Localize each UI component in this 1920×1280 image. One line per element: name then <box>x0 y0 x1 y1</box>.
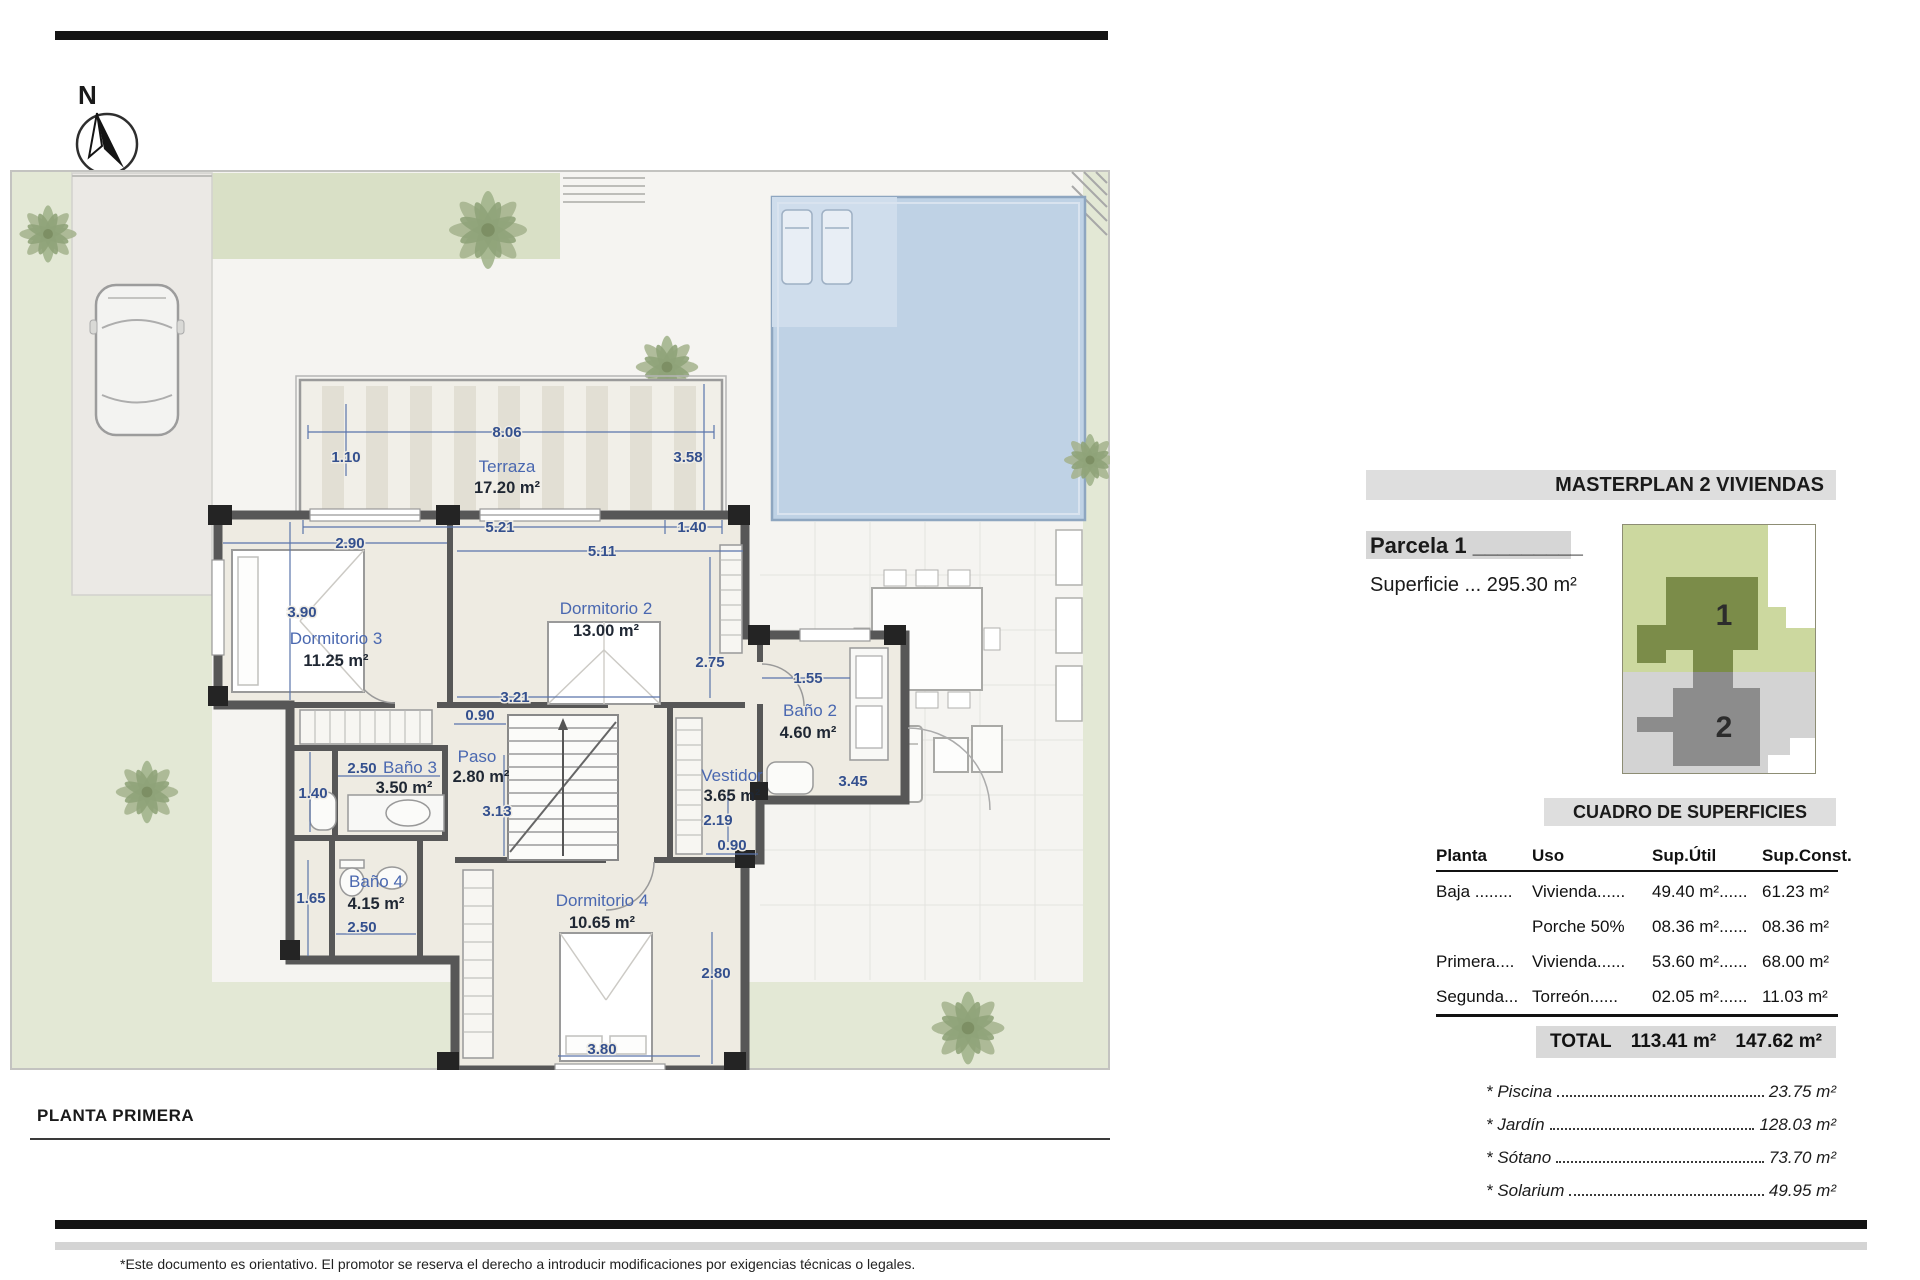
room-area-paso: 2.80 m² <box>453 768 510 786</box>
table-body: Baja ........ Vivienda...... 49.40 m²...… <box>1436 872 1838 1017</box>
dim-label: 3.58 <box>673 449 702 466</box>
col-header: Planta <box>1436 842 1532 870</box>
dotted-leader <box>1556 1161 1764 1163</box>
dim-label: 0.90 <box>465 707 494 724</box>
room-label-dorm3: Dormitorio 3 <box>290 629 383 648</box>
table-cell: Porche 50% <box>1532 909 1652 944</box>
room-area-vestidor: 3.65 m² <box>704 787 761 805</box>
room-area-dorm4: 10.65 m² <box>569 914 636 932</box>
cuadro-title: CUADRO DE SUPERFICIES <box>1573 802 1807 823</box>
superficie-label: Superficie ... 295.30 m² <box>1370 574 1577 597</box>
extras-list: * Piscina 23.75 m² * Jardín 128.03 m² * … <box>1486 1082 1836 1214</box>
extra-value: 23.75 m² <box>1769 1082 1836 1102</box>
table-cell: 68.00 m² <box>1762 944 1838 979</box>
room-area-bano3: 3.50 m² <box>376 779 433 797</box>
house-1-number: 1 <box>1709 599 1739 633</box>
house-1-wing <box>1637 625 1666 663</box>
dim-label: 1.65 <box>296 890 325 907</box>
room-label-bano3: Baño 3 <box>383 758 437 777</box>
car <box>90 285 184 435</box>
floor-plan-svg: Terraza 17.20 m² Dormitorio 3 11.25 m² D… <box>10 170 1110 1070</box>
house-2-number: 2 <box>1709 711 1739 745</box>
notch <box>1768 525 1815 607</box>
extra-label: * Piscina <box>1486 1082 1552 1102</box>
dim-label: 5.11 <box>588 543 616 560</box>
table-cell: 02.05 m²...... <box>1652 979 1762 1014</box>
col-header: Sup.Útil <box>1652 842 1762 870</box>
extra-label: * Solarium <box>1486 1181 1564 1201</box>
extra-value: 49.95 m² <box>1769 1181 1836 1201</box>
footer-note: *Este documento es orientativo. El promo… <box>120 1256 915 1272</box>
pool <box>772 197 1085 520</box>
dim-label: 2.80 <box>701 965 730 982</box>
extra-label: * Sótano <box>1486 1148 1551 1168</box>
dim-label: 3.13 <box>482 803 511 820</box>
top-rule <box>55 31 1108 40</box>
table-cell: 53.60 m²...... <box>1652 944 1762 979</box>
table-cell: 61.23 m² <box>1762 874 1838 909</box>
table-cell: Primera.... <box>1436 944 1532 979</box>
list-item: * Jardín 128.03 m² <box>1486 1115 1836 1148</box>
total-label: TOTAL <box>1550 1031 1612 1053</box>
dim-label: 3.90 <box>287 604 316 621</box>
dim-label: 1.40 <box>298 785 327 802</box>
table-cell: 08.36 m²...... <box>1652 909 1762 944</box>
room-area-bano2: 4.60 m² <box>780 724 837 742</box>
dim-label: 0.90 <box>717 837 746 854</box>
plan-title: PLANTA PRIMERA <box>37 1106 194 1126</box>
compass-icon <box>72 108 142 178</box>
table-cell: Torreón...... <box>1532 979 1652 1014</box>
room-label-dorm4: Dormitorio 4 <box>556 891 649 910</box>
total-const: 147.62 m² <box>1735 1031 1822 1053</box>
room-area-terraza: 17.20 m² <box>474 479 541 497</box>
table-cell: 08.36 m² <box>1762 909 1838 944</box>
plan-title-rule <box>30 1138 1110 1140</box>
notch <box>1768 755 1815 773</box>
planters <box>1056 530 1082 721</box>
total-row: TOTAL 113.41 m² 147.62 m² <box>1536 1026 1836 1058</box>
sun-lounger <box>822 210 852 284</box>
dim-label: 2.19 <box>703 812 732 829</box>
dim-label: 1.40 <box>677 519 706 536</box>
dim-label: 1.55 <box>793 670 822 687</box>
dim-label: 2.90 <box>335 535 364 552</box>
dim-label: 8.06 <box>492 424 521 441</box>
dotted-leader <box>1557 1095 1764 1097</box>
table-cell: 11.03 m² <box>1762 979 1838 1014</box>
list-item: * Piscina 23.75 m² <box>1486 1082 1836 1115</box>
sun-lounger <box>782 210 812 284</box>
total-util: 113.41 m² <box>1631 1031 1717 1053</box>
dim-label: 3.21 <box>500 689 529 706</box>
table-header-row: Planta Uso Sup.Útil Sup.Const. <box>1436 842 1838 872</box>
page: N <box>0 0 1920 1280</box>
house-2-wing <box>1637 717 1673 732</box>
col-header: Uso <box>1532 842 1652 870</box>
table-cell: Vivienda...... <box>1532 874 1652 909</box>
room-area-dorm2: 13.00 m² <box>573 622 640 640</box>
table-cell: Baja ........ <box>1436 874 1532 909</box>
extra-label: * Jardín <box>1486 1115 1545 1135</box>
notch <box>1786 607 1815 628</box>
masterplan-map: 1 2 <box>1622 524 1816 774</box>
table-cell: 49.40 m²...... <box>1652 874 1762 909</box>
extra-value: 128.03 m² <box>1759 1115 1836 1135</box>
col-header: Sup.Const. <box>1762 842 1838 870</box>
room-label-bano4: Baño 4 <box>349 872 403 891</box>
palm-icon <box>116 761 178 823</box>
room-label-dorm2: Dormitorio 2 <box>560 599 653 618</box>
dim-label: 5.21 <box>485 519 514 536</box>
palm-icon <box>449 191 527 269</box>
parcela-label: Parcela 1 _________ <box>1370 533 1583 559</box>
north-label: N <box>78 80 97 111</box>
dotted-leader <box>1550 1128 1755 1130</box>
dim-label: 1.10 <box>331 449 360 466</box>
room-area-dorm3: 11.25 m² <box>303 652 369 670</box>
dim-label: 2.50 <box>347 760 376 777</box>
dim-label: 3.80 <box>587 1041 616 1058</box>
bano3-fixtures <box>310 792 444 831</box>
table-cell: Vivienda...... <box>1532 944 1652 979</box>
palm-icon <box>932 992 1005 1065</box>
driveway <box>72 173 212 595</box>
masterplan-title: MASTERPLAN 2 VIVIENDAS <box>1555 474 1824 497</box>
room-label-bano2: Baño 2 <box>783 701 837 720</box>
table-cell: Segunda... <box>1436 979 1532 1014</box>
room-label-terraza: Terraza <box>479 457 536 476</box>
dim-label: 2.75 <box>695 654 724 671</box>
dim-label: 2.50 <box>347 919 376 936</box>
list-item: * Sótano 73.70 m² <box>1486 1148 1836 1181</box>
staircase <box>508 715 618 860</box>
house-2-wing <box>1693 672 1733 688</box>
room-terraza <box>296 376 726 519</box>
room-label-paso: Paso <box>458 747 497 766</box>
bottom-rule-light <box>55 1242 1867 1250</box>
bed-dorm3 <box>232 550 364 692</box>
bottom-rule <box>55 1220 1867 1229</box>
palm-icon <box>19 205 76 262</box>
surfaces-table: Planta Uso Sup.Útil Sup.Const. Baja ....… <box>1436 842 1838 1017</box>
table-cell <box>1436 909 1532 944</box>
dim-label: 3.45 <box>838 773 867 790</box>
extra-value: 73.70 m² <box>1769 1148 1836 1168</box>
list-item: * Solarium 49.95 m² <box>1486 1181 1836 1214</box>
dotted-leader <box>1569 1194 1763 1196</box>
room-label-vestidor: Vestidor <box>701 766 763 785</box>
room-area-bano4: 4.15 m² <box>348 895 405 913</box>
